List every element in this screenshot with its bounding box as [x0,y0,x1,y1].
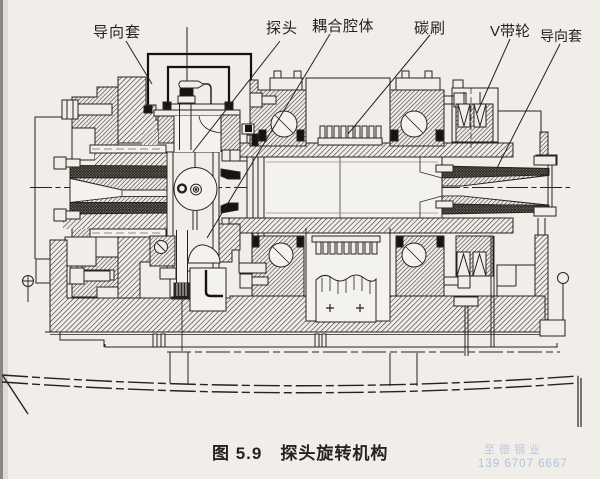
svg-text:导向套: 导向套 [540,28,582,44]
svg-text:导向套: 导向套 [93,24,141,41]
svg-text:139 6707 6667: 139 6707 6667 [478,458,568,470]
svg-text:图 5.9 探头旋转机构: 图 5.9 探头旋转机构 [212,443,388,463]
svg-text:探头: 探头 [266,20,298,37]
svg-text:V带轮: V带轮 [490,23,530,40]
svg-text:碳刷: 碳刷 [414,20,446,37]
svg-text:耦合腔体: 耦合腔体 [312,18,374,35]
svg-text:至德钢业: 至德钢业 [484,442,544,456]
